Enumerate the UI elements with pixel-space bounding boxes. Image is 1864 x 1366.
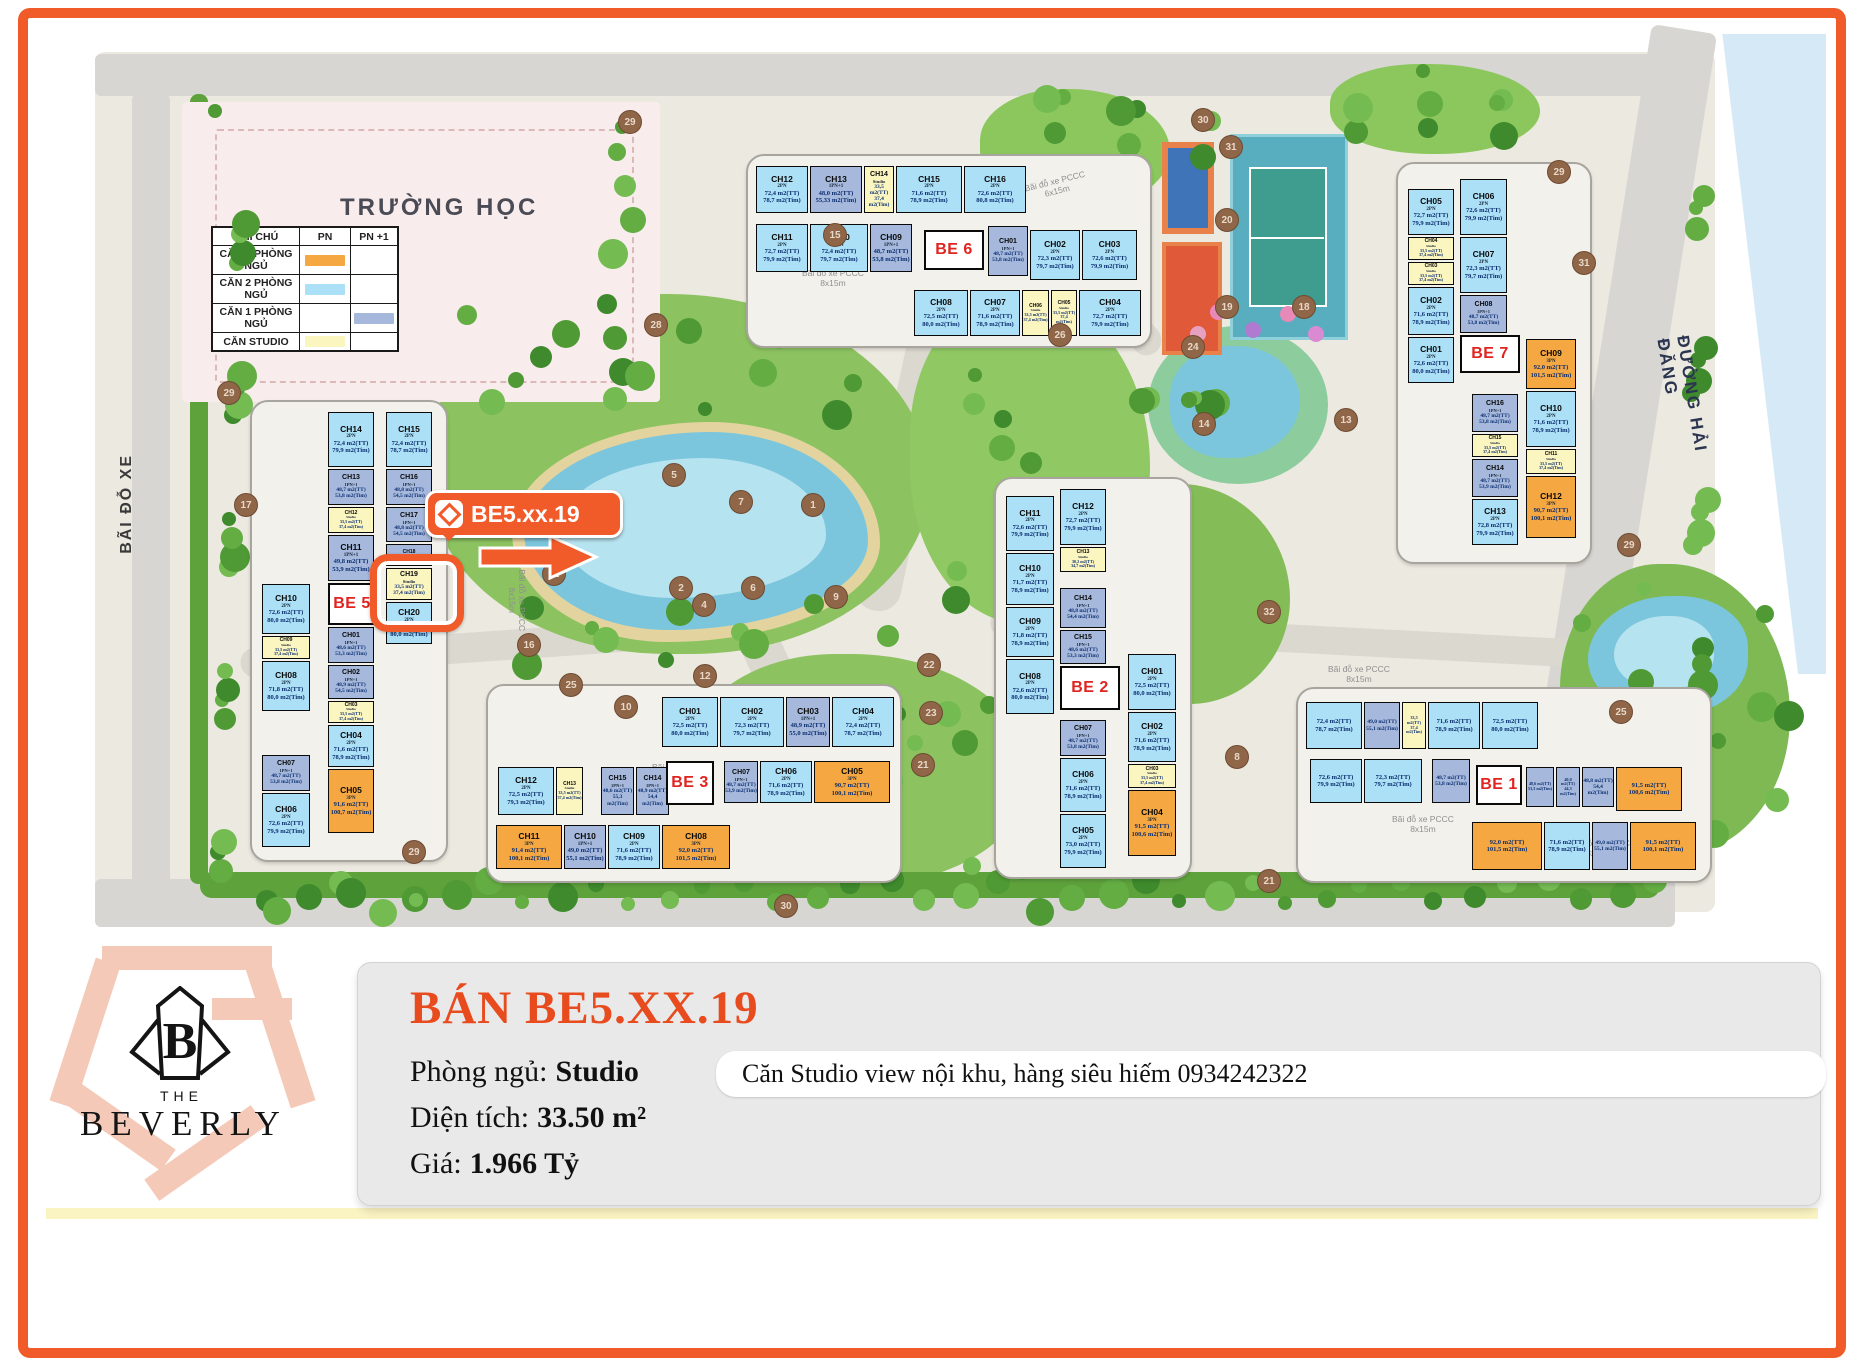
amenity-marker-14: 14: [1192, 412, 1216, 436]
selected-unit-callout[interactable]: BE5.xx.19: [425, 490, 623, 538]
unit-stack: BE 1: [1476, 765, 1522, 805]
unit-cell-be5-ch14[interactable]: CH142PN72,4 m2(TT)79,9 m2(Tim): [328, 412, 374, 467]
unit-cell-be7-ch13[interactable]: CH132PN72,8 m2(TT)79,9 m2(Tim): [1472, 499, 1518, 545]
unit-cell-be6-ch03[interactable]: CH032PN72,6 m2(TT)79,9 m2(Tim): [1082, 230, 1137, 280]
unit-cell-be6-ch02[interactable]: CH022PN72,3 m2(TT)79,7 m2(Tim): [1030, 230, 1080, 280]
unit-cell-be3-ch02[interactable]: CH022PN72,3 m2(TT)79,7 m2(Tim): [720, 697, 784, 747]
unit-stack: CH012PN72,5 m2(TT)80,0 m2(Tim)CH022PN71,…: [1128, 654, 1176, 856]
unit-stack: CH012PN72,5 m2(TT)80,0 m2(Tim)CH022PN72,…: [662, 697, 894, 747]
listing-note-text: Căn Studio view nội khu, hàng siêu hiếm …: [742, 1059, 1307, 1089]
unit-cell-be7-ch08[interactable]: CH081PN+148,7 m2(TT)53,8 m2(Tim): [1460, 295, 1507, 333]
unit-cell-be2-ch08[interactable]: CH082PN72,6 m2(TT)80,0 m2(Tim): [1006, 659, 1054, 714]
selected-unit-ring: [370, 554, 464, 632]
unit-cell-be2-ch10[interactable]: CH102PN71,7 m2(TT)78,9 m2(Tim): [1006, 553, 1054, 605]
unit-cell-be3-ch04[interactable]: CH042PN72,4 m2(TT)78,7 m2(Tim): [832, 697, 894, 747]
amenity-marker-25: 25: [1609, 700, 1633, 724]
unit-stack: CH022PN72,3 m2(TT)79,7 m2(Tim)CH032PN72,…: [1030, 230, 1137, 280]
unit-stack: CH071PN+148,7 m2(TT)53,9 m2(Tim)CH062PN7…: [724, 761, 890, 803]
amenity-marker-8: 8: [1225, 745, 1249, 769]
amenity-marker-30: 30: [1191, 108, 1215, 132]
unit-cell-be6-ch14[interactable]: CH14Studio33,5 m2(TT)37,4 m2(Tim): [864, 166, 894, 213]
unit-cell-be3-ch10[interactable]: CH101PN+149,0 m2(TT)55,1 m2(Tim): [564, 825, 606, 869]
parking-label: Bãi đỗ xe PCCC6x15m: [1023, 169, 1088, 204]
unit-cell-be2-ch11[interactable]: CH112PN72,6 m2(TT)79,9 m2(Tim): [1006, 496, 1054, 551]
amenity-marker-18: 18: [1292, 295, 1316, 319]
unit-stack: CH142PN72,4 m2(TT)79,9 m2(Tim)CH131PN+14…: [328, 412, 376, 833]
unit-cell-be5-ch09[interactable]: CH09Studio33,5 m2(TT)37,4 m2(Tim): [262, 636, 310, 659]
unit-cell-be5-ch02[interactable]: CH021PN+148,9 m2(TT)54,5 m2(Tim): [328, 665, 374, 699]
listing-title: BÁN BE5.XX.19: [410, 981, 759, 1035]
amenity-marker-2: 2: [669, 576, 693, 600]
unit-cell-be5-ch07[interactable]: CH071PN+148,7 m2(TT)53,8 m2(Tim): [262, 755, 310, 791]
building-label-be6[interactable]: BE 6: [924, 230, 984, 270]
amenity-marker-29: 29: [217, 381, 241, 405]
unit-stack: CH161PN+148,7 m2(TT)53,8 m2(Tim)CH15Stud…: [1472, 394, 1518, 545]
unit-cell-be3-ch06[interactable]: CH062PN71,6 m2(TT)78,9 m2(Tim): [760, 761, 812, 803]
svg-text:B: B: [163, 1013, 198, 1070]
unit-cell-be7-ch06[interactable]: CH062PN72,6 m2(TT)79,9 m2(Tim): [1460, 179, 1507, 235]
amenity-marker-28: 28: [644, 313, 668, 337]
unit-cell-be1[interactable]: 33,5 m2(TT)37,4 m2(Tim): [1402, 702, 1426, 749]
unit-cell-be2-ch07[interactable]: CH071PN+148,7 m2(TT)53,8 m2(Tim): [1060, 720, 1106, 756]
amenity-marker-17: 17: [234, 493, 258, 517]
site-plan-map: TRƯỜNG HỌC GHI CHÚ PN PN +1 CĂN 3 PHÒNG …: [40, 34, 1824, 954]
amenity-marker-20: 20: [1215, 208, 1239, 232]
unit-cell-be6-ch11[interactable]: CH112PN72,7 m2(TT)79,9 m2(Tim): [756, 224, 808, 272]
amenity-marker-4: 4: [692, 593, 716, 617]
callout-text: BE5.xx.19: [471, 501, 580, 528]
unit-cell-be5-ch10[interactable]: CH102PN72,6 m2(TT)80,0 m2(Tim): [262, 584, 310, 634]
unit-cell-be7-ch16[interactable]: CH161PN+148,7 m2(TT)53,8 m2(Tim): [1472, 394, 1518, 432]
unit-cell-be1[interactable]: 91,5 m2(TT)100,6 m2(Tim): [1616, 767, 1682, 811]
amenity-marker-6: 6: [741, 576, 765, 600]
amenity-marker-1: 1: [801, 493, 825, 517]
unit-stack: BE 6: [924, 230, 984, 270]
amenity-marker-29: 29: [1547, 160, 1571, 184]
amenity-marker-25: 25: [559, 673, 583, 697]
unit-cell-be6-ch06[interactable]: CH06Studio33,5 m2(TT)37,4 m2(Tim): [1022, 290, 1049, 336]
unit-cell-be6-ch04[interactable]: CH042PN72,7 m2(TT)79,9 m2(Tim): [1079, 290, 1141, 336]
unit-cell-be2-ch12[interactable]: CH122PN72,7 m2(TT)79,9 m2(Tim): [1060, 489, 1106, 545]
field-label: Diện tích:: [410, 1101, 529, 1134]
unit-stack: CH093PN92,0 m2(TT)101,5 m2(Tim)CH102PN71…: [1526, 339, 1576, 538]
building-label-be3[interactable]: BE 3: [666, 761, 714, 805]
unit-cell-be1[interactable]: 49,0 m2(TT)55,1 m2(Tim): [1592, 822, 1628, 870]
building-label-be5[interactable]: BE 5: [328, 583, 376, 625]
building-label-be1[interactable]: BE 1: [1476, 765, 1522, 805]
unit-stack: CH113PN91,4 m2(TT)100,1 m2(Tim)CH101PN+1…: [496, 825, 730, 869]
parking-label: Bãi đỗ xe PCCC8x15m: [1392, 814, 1454, 834]
amenity-marker-13: 13: [1334, 408, 1358, 432]
unit-cell-be1[interactable]: 71,6 m2(TT)78,9 m2(Tim): [1544, 822, 1590, 870]
unit-cell-be5-ch08[interactable]: CH082PN71,8 m2(TT)80,0 m2(Tim): [262, 661, 310, 711]
unit-stack: CH122PN72,5 m2(TT)79,3 m2(Tim)CH13Studio…: [498, 767, 669, 815]
unit-stack: CH102PN72,6 m2(TT)80,0 m2(Tim)CH09Studio…: [262, 584, 310, 847]
amenity-marker-29: 29: [1617, 533, 1641, 557]
parking-label: Bãi đỗ xe PCCC8x15m: [1328, 664, 1390, 684]
amenity-marker-24: 24: [1181, 335, 1205, 359]
unit-cell-be2-ch15[interactable]: CH151PN+148,6 m2(TT)53,3 m2(Tim): [1060, 630, 1106, 664]
unit-cell-be7-ch03[interactable]: CH03Studio33,5 m2(TT)37,4 m2(Tim): [1408, 262, 1454, 285]
unit-stack: CH062PN72,6 m2(TT)79,9 m2(Tim)CH072PN72,…: [1460, 179, 1520, 373]
unit-stack: 48,6 m2(TT)53,3 m2(Tim)40,0 m2(TT)44,3 m…: [1526, 767, 1682, 811]
unit-cell-be5-ch06[interactable]: CH062PN72,6 m2(TT)79,9 m2(Tim): [262, 793, 310, 847]
unit-stack: CH122PN72,7 m2(TT)79,9 m2(Tim)CH13Studio…: [1060, 489, 1120, 868]
unit-cell-be6-ch09[interactable]: CH091PN+148,7 m2(TT)53,8 m2(Tim): [870, 224, 912, 272]
unit-cell-be3-ch15[interactable]: CH151PN+148,6 m2(TT)55,3 m2(Tim): [601, 767, 634, 815]
unit-cell-be2-ch03[interactable]: CH03Studio33,5 m2(TT)37,4 m2(Tim): [1128, 764, 1176, 788]
brand-diamond-icon: [435, 500, 463, 528]
unit-cell-be1[interactable]: 72,3 m2(TT)79,7 m2(Tim): [1364, 759, 1422, 803]
unit-cell-be1[interactable]: 72,4 m2(TT)78,7 m2(Tim): [1306, 702, 1362, 749]
pointer-arrow-icon: [478, 534, 600, 580]
unit-cell-be3-ch05[interactable]: CH053PN90,7 m2(TT)100,1 m2(Tim): [814, 761, 890, 803]
beverly-b-icon: B: [120, 986, 240, 1090]
building-label-be2[interactable]: BE 2: [1060, 666, 1120, 710]
unit-cell-be1[interactable]: 91,5 m2(TT)100,1 m2(Tim): [1630, 822, 1696, 870]
unit-stack: BE 3: [666, 761, 714, 805]
unit-cell-be1[interactable]: 72,5 m2(TT)80,0 m2(Tim): [1482, 702, 1538, 749]
unit-cell-be5-ch11[interactable]: CH111PN+149,8 m2(TT)53,9 m2(Tim): [328, 535, 374, 581]
amenity-marker-23: 23: [919, 701, 943, 725]
unit-cell-be7-ch15[interactable]: CH15Studio33,5 m2(TT)37,4 m2(Tim): [1472, 434, 1518, 457]
unit-cell-be7-ch01[interactable]: CH012PN72,6 m2(TT)80,0 m2(Tim): [1408, 337, 1454, 383]
logo-the: THE: [160, 1088, 203, 1104]
unit-cell-be2-ch04[interactable]: CH043PN91,5 m2(TT)100,6 m2(Tim): [1128, 790, 1176, 856]
amenity-marker-19: 19: [1215, 295, 1239, 319]
unit-cell-be7-ch12[interactable]: CH123PN90,7 m2(TT)100,1 m2(Tim): [1526, 476, 1576, 538]
unit-stack: CH122PN72,4 m2(TT)78,7 m2(Tim)CH131PN+14…: [756, 166, 1026, 213]
amenity-marker-31: 31: [1572, 251, 1596, 275]
project-logo: B THE BEVERLY: [62, 938, 312, 1198]
unit-cell-be5-ch05[interactable]: CH053PN91,6 m2(TT)100,7 m2(Tim): [328, 769, 374, 833]
field-label: Giá:: [410, 1147, 462, 1180]
listing-field-row: Diện tích:33.50 m²: [410, 1101, 646, 1135]
unit-cell-be7-ch05[interactable]: CH052PN72,7 m2(TT)79,9 m2(Tim): [1408, 189, 1454, 235]
unit-cell-be7-ch02[interactable]: CH022PN71,6 m2(TT)78,9 m2(Tim): [1408, 287, 1454, 335]
unit-cell-be1[interactable]: 49,0 m2(TT)55,1 m2(Tim): [1364, 702, 1400, 749]
field-value: 33.50 m²: [537, 1101, 646, 1134]
amenity-marker-7: 7: [729, 490, 753, 514]
unit-cell-be1[interactable]: 48,6 m2(TT)53,3 m2(Tim): [1526, 767, 1554, 807]
unit-cell-be2-ch14[interactable]: CH141PN+148,8 m2(TT)54,4 m2(Tim): [1060, 588, 1106, 628]
unit-cell-be7-ch04[interactable]: CH04Studio33,5 m2(TT)37,4 m2(Tim): [1408, 237, 1454, 260]
amenity-marker-9: 9: [824, 585, 848, 609]
amenity-marker-30: 30: [774, 894, 798, 918]
unit-cell-be3-ch12[interactable]: CH122PN72,5 m2(TT)79,3 m2(Tim): [498, 767, 554, 815]
listing-panel: BÁN BE5.XX.19 Phòng ngủ:StudioDiện tích:…: [357, 962, 1821, 1206]
unit-cell-be6-ch13[interactable]: CH131PN+148,0 m2(TT)55,33 m2(Tim): [810, 166, 862, 213]
logo-watermark: [102, 946, 272, 970]
logo-name: BEVERLY: [80, 1104, 287, 1144]
unit-cell-be6-ch16[interactable]: CH162PN72,6 m2(TT)80,8 m2(Tim): [964, 166, 1026, 213]
unit-cell-be1[interactable]: 48,7 m2(TT)53,8 m2(Tim): [1432, 759, 1470, 803]
unit-cell-be6-ch15[interactable]: CH152PN71,6 m2(TT)78,9 m2(Tim): [896, 166, 962, 213]
unit-cell-be2-ch02[interactable]: CH022PN71,6 m2(TT)78,9 m2(Tim): [1128, 712, 1176, 762]
amenity-marker-29: 29: [618, 110, 642, 134]
logo-watermark: [244, 958, 315, 1109]
unit-cell-be7-ch14[interactable]: CH141PN+148,7 m2(TT)53,9 m2(Tim): [1472, 459, 1518, 497]
unit-cell-be3-ch07[interactable]: CH071PN+148,7 m2(TT)53,9 m2(Tim): [724, 761, 758, 803]
unit-cell-be2-ch05[interactable]: CH052PN73,0 m2(TT)79,9 m2(Tim): [1060, 814, 1106, 868]
unit-stack: 92,0 m2(TT)101,5 m2(Tim)71,6 m2(TT)78,9 …: [1472, 822, 1696, 870]
bottom-accent-strip: [46, 1208, 1818, 1219]
unit-cell-be2-ch06[interactable]: CH062PN71,6 m2(TT)78,9 m2(Tim): [1060, 758, 1106, 812]
unit-cell-be3-ch09[interactable]: CH092PN71,6 m2(TT)78,9 m2(Tim): [608, 825, 660, 869]
unit-cell-be2-ch01[interactable]: CH012PN72,5 m2(TT)80,0 m2(Tim): [1128, 654, 1176, 710]
amenity-marker-22: 22: [917, 653, 941, 677]
street-label-left: BÃI ĐỖ XE: [118, 454, 136, 554]
unit-cell-be1[interactable]: 71,6 m2(TT)78,9 m2(Tim): [1428, 702, 1480, 749]
amenity-marker-26: 26: [1048, 323, 1072, 347]
unit-cell-be7-ch10[interactable]: CH102PN71,6 m2(TT)78,9 m2(Tim): [1526, 391, 1576, 447]
unit-cell-be1[interactable]: 92,0 m2(TT)101,5 m2(Tim): [1472, 822, 1542, 870]
page: TRƯỜNG HỌC GHI CHÚ PN PN +1 CĂN 3 PHÒNG …: [0, 0, 1864, 1366]
listing-field-row: Giá:1.966 Tỷ: [410, 1147, 579, 1181]
unit-cell-be3-ch14[interactable]: CH141PN+148,9 m2(TT)54,4 m2(Tim): [636, 767, 669, 815]
amenity-marker-31: 31: [1219, 135, 1243, 159]
unit-cell-be7-ch09[interactable]: CH093PN92,0 m2(TT)101,5 m2(Tim): [1526, 339, 1576, 389]
unit-cell-be6-ch07[interactable]: CH072PN71,6 m2(TT)78,9 m2(Tim): [970, 290, 1020, 336]
unit-cell-be1[interactable]: 48,8 m2(TT)54,4 m2(Tim): [1582, 767, 1614, 807]
unit-cell-be5-ch01[interactable]: CH011PN+148,6 m2(TT)53,3 m2(Tim): [328, 627, 374, 663]
amenity-marker-10: 10: [614, 695, 638, 719]
unit-cell-be3-ch11[interactable]: CH113PN91,4 m2(TT)100,1 m2(Tim): [496, 825, 562, 869]
unit-cell-be3-ch13[interactable]: CH13Studio33,5 m2(TT)37,4 m2(Tim): [556, 767, 583, 815]
listing-field-row: Phòng ngủ:Studio: [410, 1055, 639, 1089]
unit-cell-be5-ch12[interactable]: CH12Studio33,5 m2(TT)37,4 m2(Tim): [328, 507, 374, 533]
amenity-marker-21: 21: [911, 753, 935, 777]
unit-cell-be6-ch12[interactable]: CH122PN72,4 m2(TT)78,7 m2(Tim): [756, 166, 808, 213]
amenity-marker-29: 29: [402, 840, 426, 864]
unit-cell-be7-ch11[interactable]: CH11Studio33,5 m2(TT)37,4 m2(Tim): [1526, 449, 1576, 474]
unit-stack: 72,4 m2(TT)78,7 m2(Tim)49,0 m2(TT)55,1 m…: [1306, 702, 1538, 749]
unit-stack: CH112PN72,6 m2(TT)79,9 m2(Tim)CH102PN71,…: [1006, 496, 1054, 714]
amenity-marker-32: 32: [1257, 600, 1281, 624]
unit-stack: CH052PN72,7 m2(TT)79,9 m2(Tim)CH04Studio…: [1408, 189, 1454, 383]
unit-cell-be5-ch13[interactable]: CH131PN+148,7 m2(TT)53,8 m2(Tim): [328, 469, 374, 505]
unit-cell-be2-ch09[interactable]: CH092PN71,8 m2(TT)78,9 m2(Tim): [1006, 607, 1054, 657]
unit-cell-be5-ch04[interactable]: CH042PN71,6 m2(TT)78,9 m2(Tim): [328, 725, 374, 767]
unit-cell-be6-ch01[interactable]: CH011PN+148,7 m2(TT)53,8 m2(Tim): [988, 226, 1028, 276]
unit-stack: CH011PN+148,7 m2(TT)53,8 m2(Tim): [988, 226, 1028, 276]
unit-cell-be2-ch13[interactable]: CH13Studio30,2 m2(TT)34,7 m2(Tim): [1060, 547, 1106, 572]
amenity-marker-21: 21: [1257, 869, 1281, 893]
unit-cell-be3-ch01[interactable]: CH012PN72,5 m2(TT)80,0 m2(Tim): [662, 697, 718, 747]
field-value: 1.966 Tỷ: [470, 1147, 579, 1180]
building-label-be7[interactable]: BE 7: [1460, 335, 1520, 373]
amenity-marker-5: 5: [662, 463, 686, 487]
unit-cell-be5-ch03[interactable]: CH03Studio33,5 m2(TT)37,4 m2(Tim): [328, 701, 374, 723]
field-value: Studio: [556, 1055, 639, 1088]
unit-cell-be1[interactable]: 72,6 m2(TT)79,9 m2(Tim): [1310, 759, 1362, 803]
unit-stack: CH082PN72,5 m2(TT)80,0 m2(Tim)CH072PN71,…: [914, 290, 1141, 336]
amenity-marker-12: 12: [693, 664, 717, 688]
unit-cell-be3-ch08[interactable]: CH083PN92,0 m2(TT)101,5 m2(Tim): [662, 825, 730, 869]
unit-cell-be6-ch08[interactable]: CH082PN72,5 m2(TT)80,0 m2(Tim): [914, 290, 968, 336]
unit-cell-be5-ch15[interactable]: CH152PN72,4 m2(TT)78,7 m2(Tim): [386, 412, 432, 467]
unit-cell-be1[interactable]: 40,0 m2(TT)44,3 m2(Tim): [1556, 767, 1580, 807]
field-label: Phòng ngủ:: [410, 1055, 548, 1088]
listing-note[interactable]: Căn Studio view nội khu, hàng siêu hiếm …: [716, 1051, 1826, 1097]
unit-cell-be7-ch07[interactable]: CH072PN72,3 m2(TT)79,7 m2(Tim): [1460, 237, 1507, 293]
unit-cell-be3-ch03[interactable]: CH031PN+148,9 m2(TT)55,0 m2(Tim): [786, 697, 830, 747]
unit-stack: 72,6 m2(TT)79,9 m2(Tim)72,3 m2(TT)79,7 m…: [1310, 759, 1470, 803]
amenity-marker-15: 15: [823, 223, 847, 247]
amenity-marker-16: 16: [517, 633, 541, 657]
